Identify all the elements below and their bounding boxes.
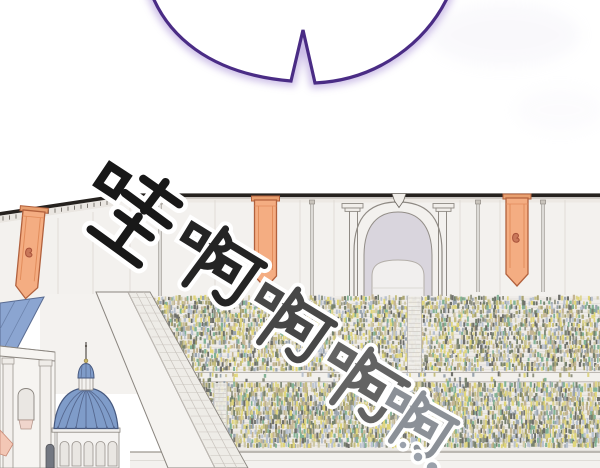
drum-arches xyxy=(60,442,117,467)
webtoon-panel: 哇啊啊啊啊…… xyxy=(0,0,600,468)
panel-art xyxy=(0,0,600,468)
finial-ball xyxy=(84,359,88,363)
capital xyxy=(2,358,14,364)
basin xyxy=(19,420,33,429)
arched-niche xyxy=(18,389,34,421)
dark-archway xyxy=(46,444,54,468)
spire-ball xyxy=(85,345,87,347)
rib-knobs xyxy=(57,426,115,428)
banner-right xyxy=(503,194,531,286)
capital xyxy=(39,360,52,366)
watercolor-smudge xyxy=(430,3,580,67)
aisle xyxy=(408,296,422,372)
arch-tunnel xyxy=(372,260,424,302)
